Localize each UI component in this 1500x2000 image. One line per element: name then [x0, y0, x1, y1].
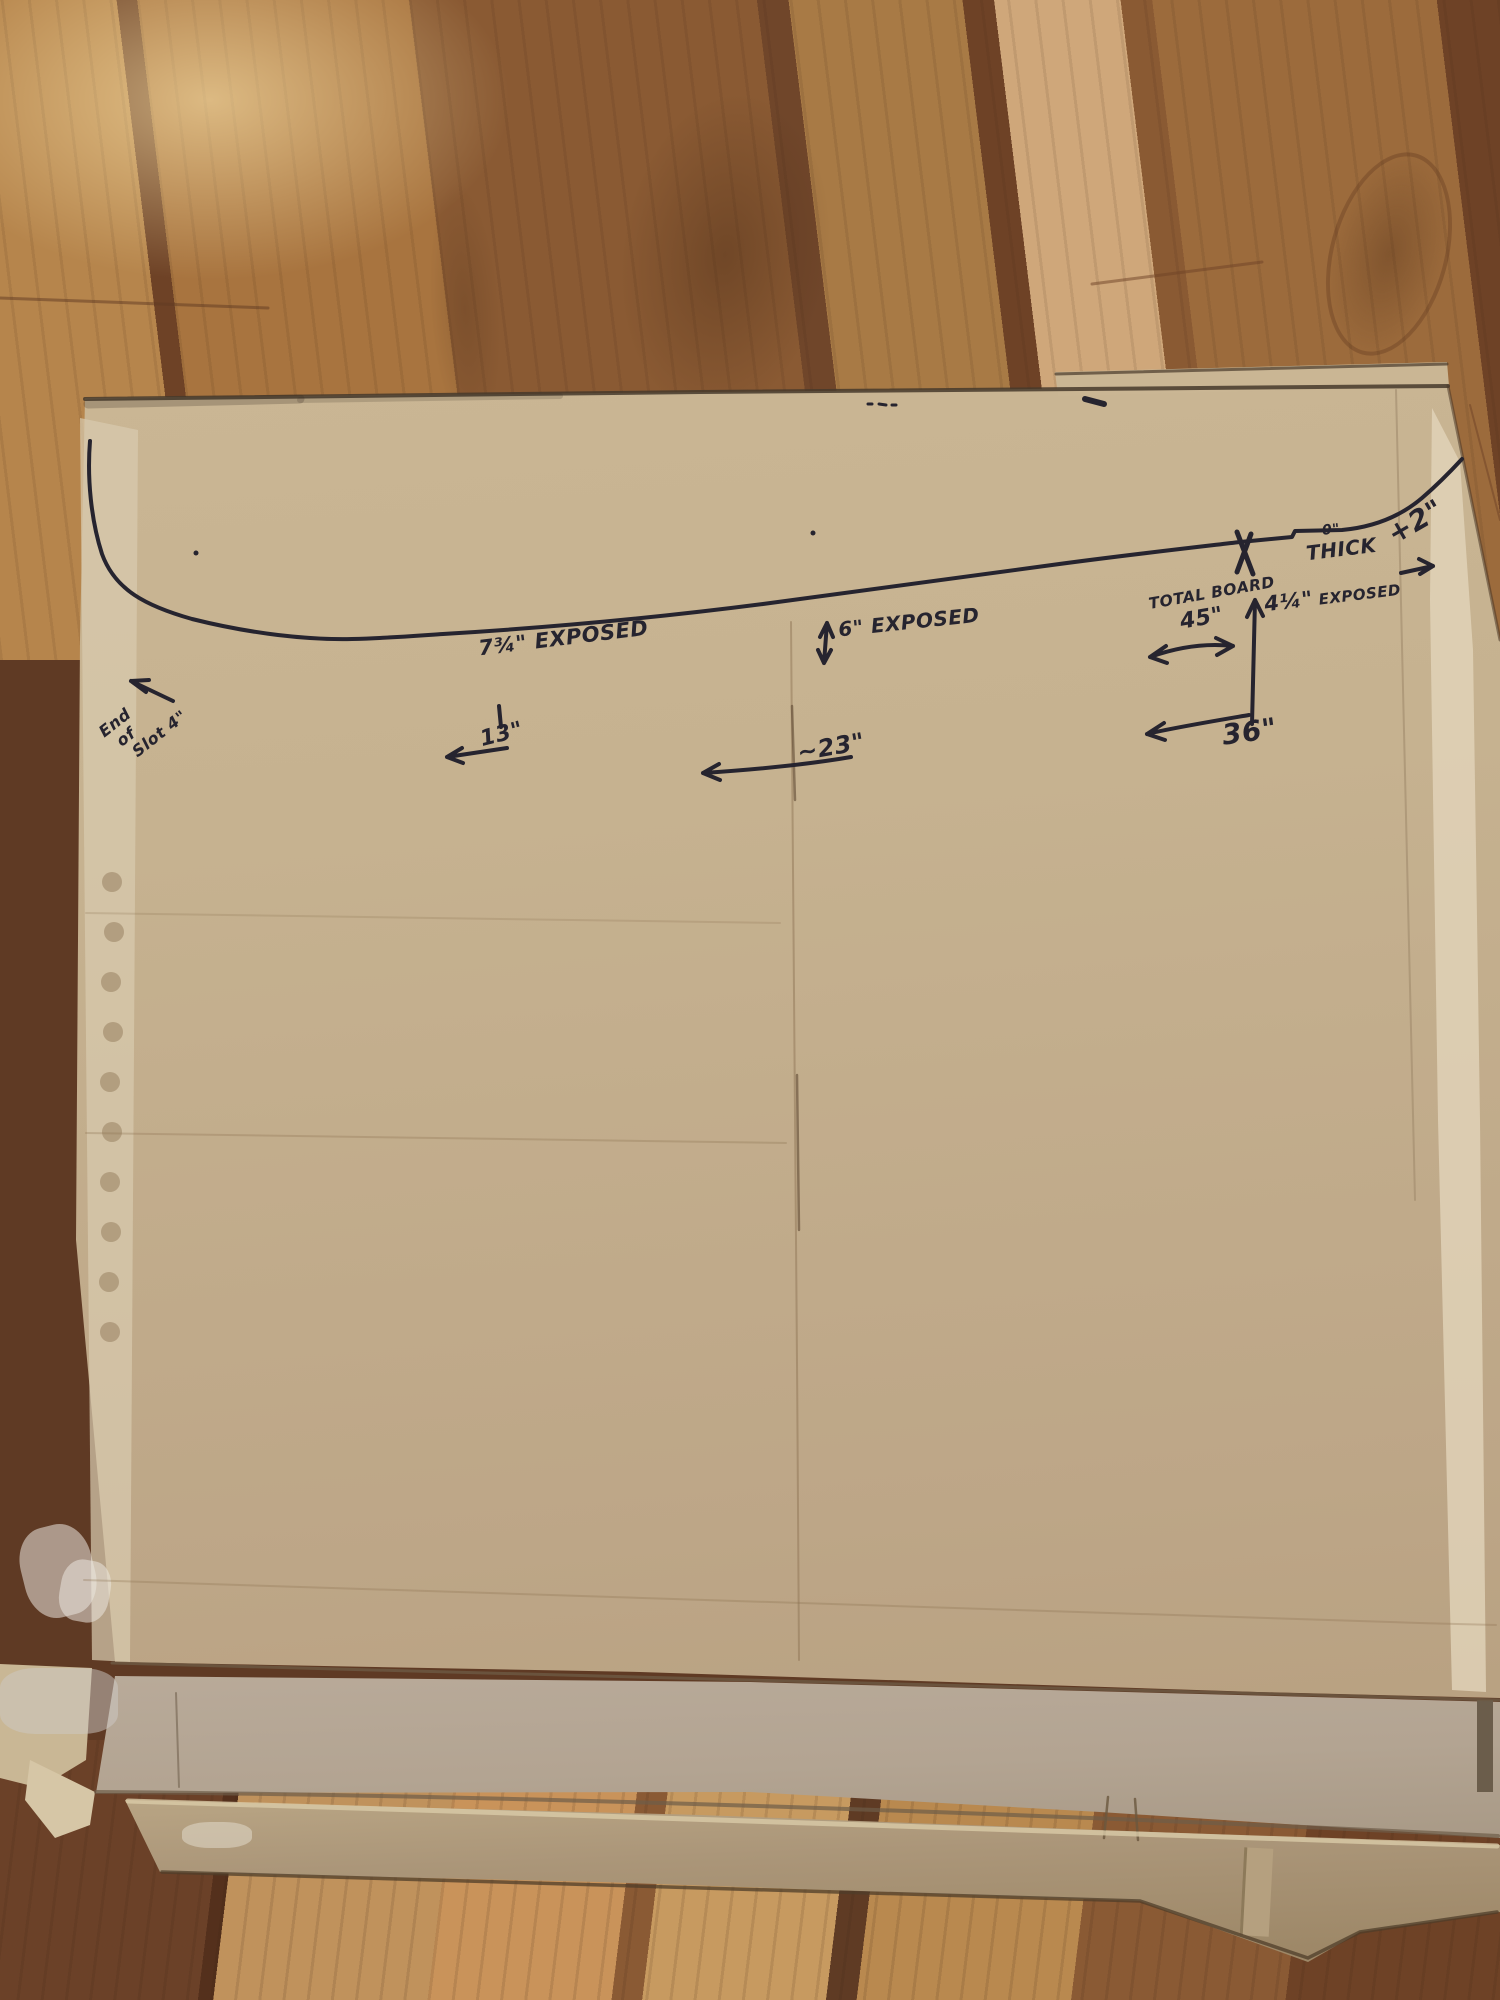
horizontal-crease — [86, 1133, 786, 1143]
marker-edge-mark — [1085, 399, 1104, 404]
horizontal-crease — [84, 1580, 1496, 1625]
annotation-36in: 36" — [1220, 714, 1278, 749]
marker-45in-vertical-line — [1247, 600, 1263, 724]
marker-x-tick — [1237, 532, 1253, 574]
torn-edge-shadow — [88, 399, 300, 404]
marker-6in-double-arrow — [818, 623, 833, 663]
marker-overlay — [0, 0, 1500, 2000]
floor-plank-joint — [0, 298, 268, 308]
flap-bottom-edge — [96, 1792, 1498, 1836]
back-edge-line — [1056, 364, 1447, 374]
flap-score-line — [176, 1693, 179, 1787]
marker-13in-arrow — [447, 748, 507, 763]
horizontal-crease — [86, 913, 780, 923]
lower-band-bottom-edge — [162, 1872, 1497, 1958]
center-crease-crack — [797, 1075, 799, 1230]
marker-plus2-arrow — [1401, 559, 1433, 574]
annotation-0in: 0" — [1321, 522, 1340, 538]
torn-edge-shadow — [300, 396, 560, 400]
marker-45in-double-arrow — [1150, 638, 1233, 663]
marker-dot — [194, 551, 199, 556]
floor-plank-seam — [1470, 405, 1500, 520]
marker-dot — [811, 531, 816, 536]
floor-plank-joint — [1092, 262, 1262, 284]
bottom-fold-crease — [112, 1663, 1500, 1700]
photo-of-cardboard-template: 7¾" EXPOSED 13" 6" EXPOSED ~23" TOTAL BO… — [0, 0, 1500, 2000]
marker-edge-dashes — [868, 404, 896, 405]
